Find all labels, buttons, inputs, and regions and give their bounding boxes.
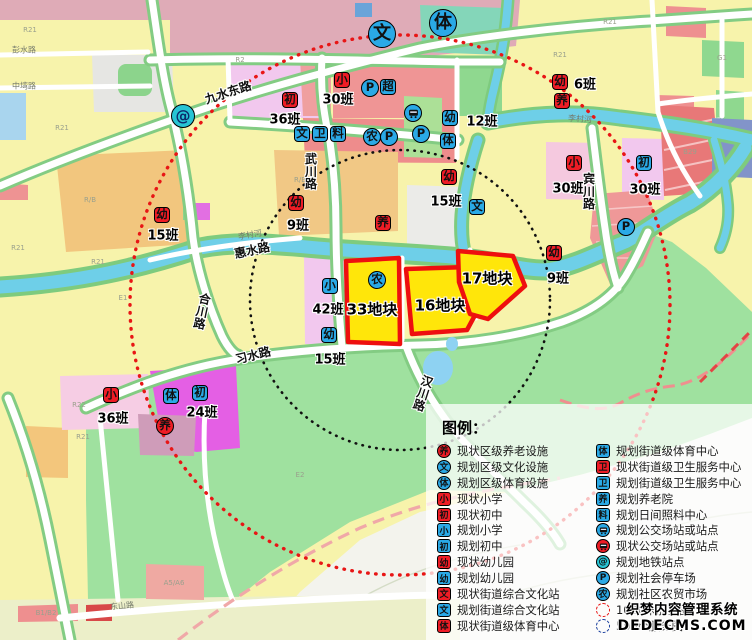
parking-icon[interactable]: P xyxy=(412,125,430,143)
supermarket-icon[interactable]: 超 xyxy=(380,79,396,95)
elderly-care-icon[interactable]: 养 xyxy=(554,93,570,109)
legend-planned-middle-label: 规划初中 xyxy=(457,538,503,554)
district-sports-icon[interactable]: 体 xyxy=(429,9,457,37)
legend-planned-street-sports-icon: 体 xyxy=(596,444,610,458)
existing-middle-school-icon[interactable]: 初 xyxy=(282,92,298,108)
legend-planned-primary-label: 规划小学 xyxy=(457,522,503,538)
legend-column-left: 养现状区级养老设施文规划区级文化设施体规划区级体育设施小现状小学初现状初中小规划… xyxy=(437,443,560,634)
legend-existing-street-sports-label: 现状街道级体育中心 xyxy=(457,618,560,634)
farmers-market-icon[interactable]: 农 xyxy=(368,271,386,289)
legend-planned-metro: @规划地铁站点 xyxy=(596,554,741,570)
bus-station-icon[interactable] xyxy=(404,104,422,122)
legend-planned-health-center: 卫规划街道级卫生服务中心 xyxy=(596,475,741,491)
existing-kindergarten-icon[interactable]: 幼 xyxy=(441,169,457,185)
watermark: 织梦内容管理系统 DEDECMS.COM xyxy=(612,602,752,634)
legend-1000m-radius-icon xyxy=(596,603,610,617)
legend-existing-street-sports: 体现状街道级体育中心 xyxy=(437,618,560,634)
parking-icon[interactable]: P xyxy=(617,218,635,236)
legend-existing-district-elderly-label: 现状区级养老设施 xyxy=(457,443,548,459)
legend-planned-parking-label: 规划社会停车场 xyxy=(616,570,696,586)
legend-existing-health-center: 卫现状街道级卫生服务中心 xyxy=(596,459,741,475)
planned-daycare-icon[interactable]: 料 xyxy=(330,126,346,142)
parking-icon[interactable]: P xyxy=(380,128,398,146)
legend-planned-daycare-label: 规划日间照料中心 xyxy=(616,507,707,523)
legend-existing-health-center-label: 现状街道级卫生服务中心 xyxy=(616,459,741,475)
planned-health-center-icon[interactable]: 卫 xyxy=(312,126,328,142)
legend-existing-middle-label: 现状初中 xyxy=(457,507,503,523)
existing-primary-school-icon[interactable]: 小 xyxy=(566,155,582,171)
legend-planned-bus: 规划公交场站或站点 xyxy=(596,522,741,538)
legend-planned-market-icon: 农 xyxy=(596,587,610,601)
legend-planned-middle-icon: 初 xyxy=(437,539,451,553)
planned-kindergarten-icon[interactable]: 幼 xyxy=(442,110,458,126)
legend-title: 图例： xyxy=(442,417,487,438)
legend-existing-culture-station-label: 现状街道综合文化站 xyxy=(457,586,560,602)
legend-existing-kindergarten-label: 现状幼儿园 xyxy=(457,554,514,570)
legend-existing-bus-icon xyxy=(596,539,610,553)
legend-planned-district-culture-icon: 文 xyxy=(437,460,451,474)
legend-planned-district-culture: 文规划区级文化设施 xyxy=(437,459,560,475)
legend-existing-district-elderly-icon: 养 xyxy=(437,444,451,458)
legend-planned-primary: 小规划小学 xyxy=(437,522,560,538)
district-elderly-care-icon[interactable]: 养 xyxy=(156,417,174,435)
legend-planned-market-label: 规划社区农贸市场 xyxy=(616,586,707,602)
farmers-market-icon[interactable]: 农 xyxy=(363,128,381,146)
legend-planned-district-sports: 体规划区级体育设施 xyxy=(437,475,560,491)
legend-existing-primary-icon: 小 xyxy=(437,492,451,506)
legend-existing-primary-label: 现状小学 xyxy=(457,491,503,507)
existing-kindergarten-icon[interactable]: 幼 xyxy=(154,207,170,223)
existing-primary-school-icon[interactable]: 小 xyxy=(103,387,119,403)
legend-planned-kindergarten: 幼规划幼儿园 xyxy=(437,570,560,586)
legend-planned-parking: P规划社会停车场 xyxy=(596,570,741,586)
legend-planned-primary-icon: 小 xyxy=(437,523,451,537)
legend-planned-bus-icon xyxy=(596,523,610,537)
watermark-line2: DEDECMS.COM xyxy=(612,618,752,634)
legend-existing-district-elderly: 养现状区级养老设施 xyxy=(437,443,560,459)
legend-existing-bus-label: 现状公交场站或站点 xyxy=(616,538,719,554)
legend-planned-metro-label: 规划地铁站点 xyxy=(616,554,684,570)
planned-street-sports-icon[interactable]: 体 xyxy=(440,133,456,149)
legend-planned-health-center-icon: 卫 xyxy=(596,476,610,490)
legend-planned-elderly-home-icon: 养 xyxy=(596,492,610,506)
planned-middle-school-icon[interactable]: 初 xyxy=(192,385,208,401)
legend-planned-daycare: 料规划日间照料中心 xyxy=(596,507,741,523)
legend-existing-kindergarten: 幼现状幼儿园 xyxy=(437,554,560,570)
legend-planned-parking-icon: P xyxy=(596,571,610,585)
legend-planned-health-center-label: 规划街道级卫生服务中心 xyxy=(616,475,741,491)
metro-station-icon[interactable]: @ xyxy=(171,104,195,128)
legend-planned-kindergarten-label: 规划幼儿园 xyxy=(457,570,514,586)
legend-existing-culture-station: 文现状街道综合文化站 xyxy=(437,586,560,602)
legend-existing-kindergarten-icon: 幼 xyxy=(437,555,451,569)
legend-existing-bus: 现状公交场站或站点 xyxy=(596,538,741,554)
planned-street-sports-icon[interactable]: 体 xyxy=(163,388,179,404)
legend-planned-bus-label: 规划公交场站或站点 xyxy=(616,522,719,538)
legend-planned-street-sports-label: 规划街道级体育中心 xyxy=(616,443,719,459)
legend-planned-elderly-home: 养规划养老院 xyxy=(596,491,741,507)
legend-planned-district-sports-label: 规划区级体育设施 xyxy=(457,475,548,491)
legend-existing-health-center-icon: 卫 xyxy=(596,460,610,474)
legend-planned-street-sports: 体规划街道级体育中心 xyxy=(596,443,741,459)
legend-planned-market: 农规划社区农贸市场 xyxy=(596,586,741,602)
legend-planned-middle: 初规划初中 xyxy=(437,538,560,554)
planned-culture-station-icon[interactable]: 文 xyxy=(294,126,310,142)
legend-existing-middle-icon: 初 xyxy=(437,508,451,522)
existing-kindergarten-icon[interactable]: 幼 xyxy=(288,195,304,211)
planned-middle-school-icon[interactable]: 初 xyxy=(636,155,652,171)
legend-existing-culture-station-icon: 文 xyxy=(437,587,451,601)
legend-planned-district-sports-icon: 体 xyxy=(437,476,451,490)
planned-primary-school-icon[interactable]: 小 xyxy=(322,278,338,294)
legend-existing-middle: 初现状初中 xyxy=(437,507,560,523)
district-culture-icon[interactable]: 文 xyxy=(368,20,396,48)
legend-existing-street-sports-icon: 体 xyxy=(437,619,451,633)
watermark-line1: 织梦内容管理系统 xyxy=(612,602,752,618)
legend-planned-elderly-home-label: 规划养老院 xyxy=(616,491,673,507)
planning-map: R21R21R21R21R21R21R21R22R2R/BR/BE1E2B1/B… xyxy=(0,0,752,640)
legend-planned-daycare-icon: 料 xyxy=(596,508,610,522)
elderly-care-icon[interactable]: 养 xyxy=(375,215,391,231)
legend-planned-culture-station-icon: 文 xyxy=(437,603,451,617)
legend-planned-culture-station: 文规划街道综合文化站 xyxy=(437,602,560,618)
planned-culture-station-icon[interactable]: 文 xyxy=(469,199,485,215)
legend-planned-district-culture-label: 规划区级文化设施 xyxy=(457,459,548,475)
existing-primary-school-icon[interactable]: 小 xyxy=(334,72,350,88)
legend-existing-primary: 小现状小学 xyxy=(437,491,560,507)
legend-500m-radius-icon xyxy=(596,619,610,633)
legend-planned-metro-icon: @ xyxy=(596,555,610,569)
planned-kindergarten-icon[interactable]: 幼 xyxy=(321,327,337,343)
existing-kindergarten-icon[interactable]: 幼 xyxy=(552,74,568,90)
parking-icon[interactable]: P xyxy=(361,79,379,97)
legend-planned-kindergarten-icon: 幼 xyxy=(437,571,451,585)
legend-planned-culture-station-label: 规划街道综合文化站 xyxy=(457,602,560,618)
existing-kindergarten-icon[interactable]: 幼 xyxy=(546,245,562,261)
